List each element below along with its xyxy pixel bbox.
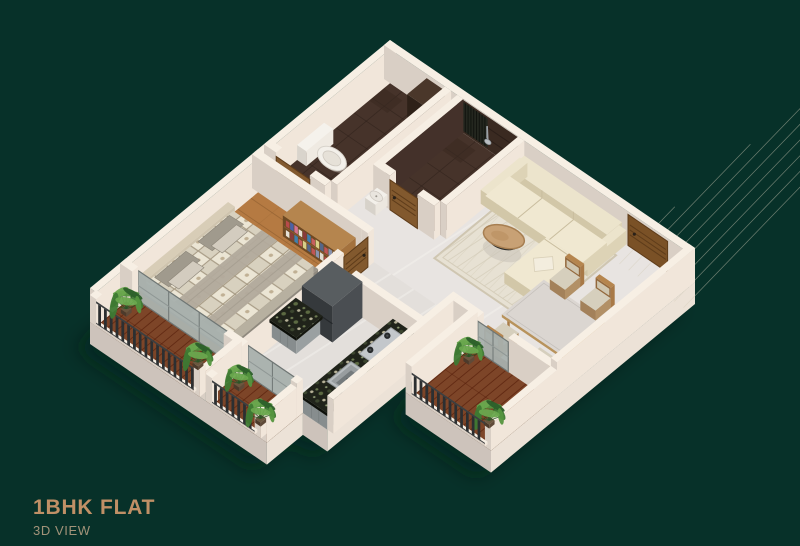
- plan-caption: 1BHK FLAT 3D VIEW: [33, 496, 155, 538]
- plan-subtitle: 3D VIEW: [33, 523, 155, 538]
- floorplan-stage: 1BHK FLAT 3D VIEW: [0, 0, 800, 546]
- plan-title: 1BHK FLAT: [33, 496, 155, 520]
- floorplan-3d-view: [0, 0, 800, 546]
